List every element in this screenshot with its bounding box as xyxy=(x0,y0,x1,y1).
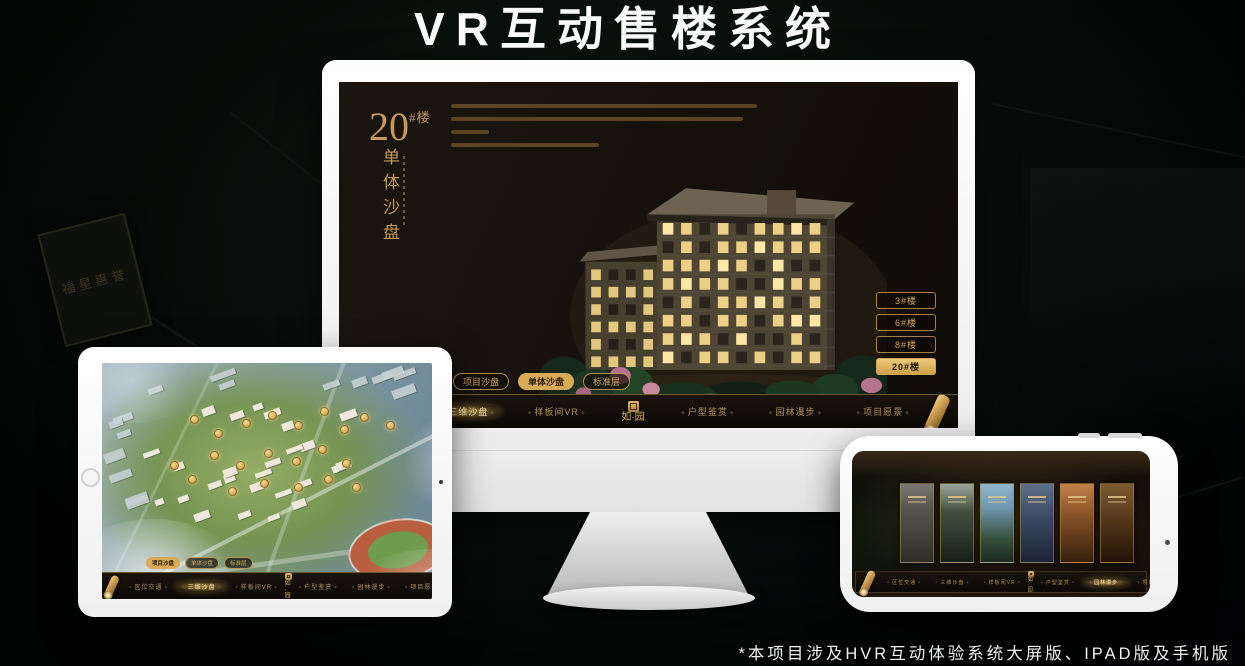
footnote: *本项目涉及HVR互动体验系统大屏版、IPAD版及手机版 xyxy=(738,640,1231,664)
building-badge[interactable] xyxy=(292,457,301,466)
section-title: 单体沙盘 xyxy=(377,148,402,248)
building-badge[interactable] xyxy=(228,487,237,496)
nav-item-garden-walk[interactable]: 园林漫步 xyxy=(762,404,830,419)
phone-navbar: 区位交通 三维沙盘 样板间VR 如·园 户型鉴赏 园林漫步 项目愿景 xyxy=(855,571,1147,593)
seal-stamp-icon xyxy=(1028,571,1034,577)
building-badge[interactable] xyxy=(386,421,395,430)
gallery-card[interactable] xyxy=(1060,483,1094,563)
page-title: VR互动售楼系统 xyxy=(0,0,1245,58)
text-line xyxy=(451,117,743,121)
nav-group-right: 户型鉴赏 园林漫步 项目愿景 xyxy=(1034,578,1150,587)
subtab-project-sandbox[interactable]: 项目沙盘 xyxy=(146,557,180,569)
phone-device: 区位交通 三维沙盘 样板间VR 如·园 户型鉴赏 园林漫步 项目愿景 xyxy=(840,436,1178,612)
nav-item-showroom-vr[interactable]: 样板间VR xyxy=(521,404,593,419)
brand-logo: 如·园 xyxy=(602,401,664,423)
floor-button[interactable]: 6#楼 xyxy=(876,314,936,331)
section-subtitle-dots xyxy=(403,156,405,228)
phone-screen: 区位交通 三维沙盘 样板间VR 如·园 户型鉴赏 园林漫步 项目愿景 xyxy=(852,451,1150,597)
seal-stamp-icon xyxy=(285,573,292,580)
gallery-card[interactable] xyxy=(980,483,1014,563)
nav-item-project-vision[interactable]: 项目愿景 xyxy=(1130,578,1150,587)
floor-button-group: 3#楼 6#楼 8#楼 20#楼 xyxy=(876,292,936,375)
nav-item-garden-walk[interactable]: 园林漫步 xyxy=(1082,578,1130,587)
building-badge[interactable] xyxy=(360,413,369,422)
nav-group-right: 户型鉴赏 园林漫步 项目愿景 xyxy=(292,581,432,592)
building-number-suffix: #楼 xyxy=(409,110,431,125)
scroll-ornament-icon xyxy=(104,574,120,597)
building-3d-model[interactable] xyxy=(539,160,887,404)
nav-item-unit-plans[interactable]: 户型鉴赏 xyxy=(292,581,345,592)
nav-group-right: 户型鉴赏 园林漫步 项目愿景 xyxy=(664,404,927,419)
subtab-single-sandbox[interactable]: 单体沙盘 xyxy=(518,373,574,390)
building-badge[interactable] xyxy=(320,407,329,416)
monitor-stand-base xyxy=(543,586,755,610)
tablet-navbar: 区位交通 三维沙盘 样板间VR 如·园 户型鉴赏 园林漫步 项目愿景 xyxy=(102,572,432,599)
nav-item-3d-sandbox[interactable]: 三维沙盘 xyxy=(175,581,228,592)
scroll-ornament-icon xyxy=(924,393,951,428)
floor-button[interactable]: 3#楼 xyxy=(876,292,936,309)
building-badge[interactable] xyxy=(318,445,327,454)
text-line xyxy=(451,143,599,147)
interior-ceiling xyxy=(852,451,1150,477)
building-badge[interactable] xyxy=(268,411,277,420)
home-button[interactable] xyxy=(81,468,100,487)
building-badge[interactable] xyxy=(188,475,197,484)
text-line xyxy=(451,104,757,108)
floor-button[interactable]: 8#楼 xyxy=(876,336,936,353)
building-badge[interactable] xyxy=(324,475,333,484)
building-badge[interactable] xyxy=(342,459,351,468)
nav-group-left: 区位交通 三维沙盘 样板间VR xyxy=(122,581,285,592)
gallery-card[interactable] xyxy=(1100,483,1134,563)
scroll-ornament-icon xyxy=(859,569,876,594)
nav-item-showroom-vr[interactable]: 样板间VR xyxy=(228,581,284,592)
nav-item-3d-sandbox[interactable]: 三维沙盘 xyxy=(928,578,976,587)
building-badge[interactable] xyxy=(242,419,251,428)
brand-logo-text: 如·园 xyxy=(285,581,292,599)
building-number-heading: 20#楼 xyxy=(369,96,431,149)
text-line xyxy=(451,130,489,134)
sandbox-subtabs: 项目沙盘 单体沙盘 标准层 xyxy=(453,373,630,390)
nav-group-left: 区位交通 三维沙盘 样板间VR xyxy=(880,578,1028,587)
plaque-text: 福星惠誉 xyxy=(60,263,131,298)
tablet-subtabs: 项目沙盘 单体沙盘 标准层 xyxy=(146,557,253,569)
camera-dot-icon xyxy=(1165,540,1170,545)
nav-item-garden-walk[interactable]: 园林漫步 xyxy=(345,581,398,592)
building-badge[interactable] xyxy=(294,421,303,430)
nav-item-unit-plans[interactable]: 户型鉴赏 xyxy=(674,404,742,419)
seal-stamp-icon xyxy=(628,401,639,412)
building-badge[interactable] xyxy=(352,483,361,492)
gallery-card[interactable] xyxy=(940,483,974,563)
volume-button[interactable] xyxy=(1108,433,1142,438)
nav-item-project-vision[interactable]: 项目愿景 xyxy=(849,404,917,419)
subtab-single-sandbox[interactable]: 单体沙盘 xyxy=(185,557,219,569)
nav-item-project-vision[interactable]: 项目愿景 xyxy=(398,581,432,592)
stage: 福星惠誉 20#楼 单体沙盘 xyxy=(0,0,1245,666)
building-badge[interactable] xyxy=(214,429,223,438)
background-aerial-faint xyxy=(1030,168,1245,433)
building-badge[interactable] xyxy=(260,479,269,488)
subtab-standard-floor[interactable]: 标准层 xyxy=(583,373,630,390)
brand-logo-text: 如·园 xyxy=(621,413,644,423)
subtab-standard-floor[interactable]: 标准层 xyxy=(224,557,253,569)
camera-dot-icon xyxy=(439,480,443,484)
nav-item-unit-plans[interactable]: 户型鉴赏 xyxy=(1034,578,1082,587)
floor-button-active[interactable]: 20#楼 xyxy=(876,358,936,375)
gallery-card[interactable] xyxy=(900,483,934,563)
subtab-project-sandbox[interactable]: 项目沙盘 xyxy=(453,373,509,390)
building-badge[interactable] xyxy=(236,461,245,470)
building-badge[interactable] xyxy=(340,425,349,434)
tablet-screen: 项目沙盘 单体沙盘 标准层 区位交通 三维沙盘 样板间VR 如·园 户型鉴赏 园… xyxy=(102,363,432,599)
gallery-card[interactable] xyxy=(1020,483,1054,563)
building-number: 20 xyxy=(369,104,409,149)
nav-item-location[interactable]: 区位交通 xyxy=(880,578,928,587)
nav-item-showroom-vr[interactable]: 样板间VR xyxy=(977,578,1028,587)
building-badge[interactable] xyxy=(210,451,219,460)
building-badge[interactable] xyxy=(264,449,273,458)
brand-logo: 如·园 xyxy=(285,573,292,599)
nav-item-location[interactable]: 区位交通 xyxy=(122,581,175,592)
tablet-device: 项目沙盘 单体沙盘 标准层 区位交通 三维沙盘 样板间VR 如·园 户型鉴赏 园… xyxy=(78,347,452,617)
volume-button[interactable] xyxy=(1078,433,1100,438)
building-badge[interactable] xyxy=(170,461,179,470)
building-badge[interactable] xyxy=(294,483,303,492)
scene-gallery xyxy=(900,483,1134,563)
building-badge[interactable] xyxy=(190,415,199,424)
intro-paragraph xyxy=(451,104,771,156)
